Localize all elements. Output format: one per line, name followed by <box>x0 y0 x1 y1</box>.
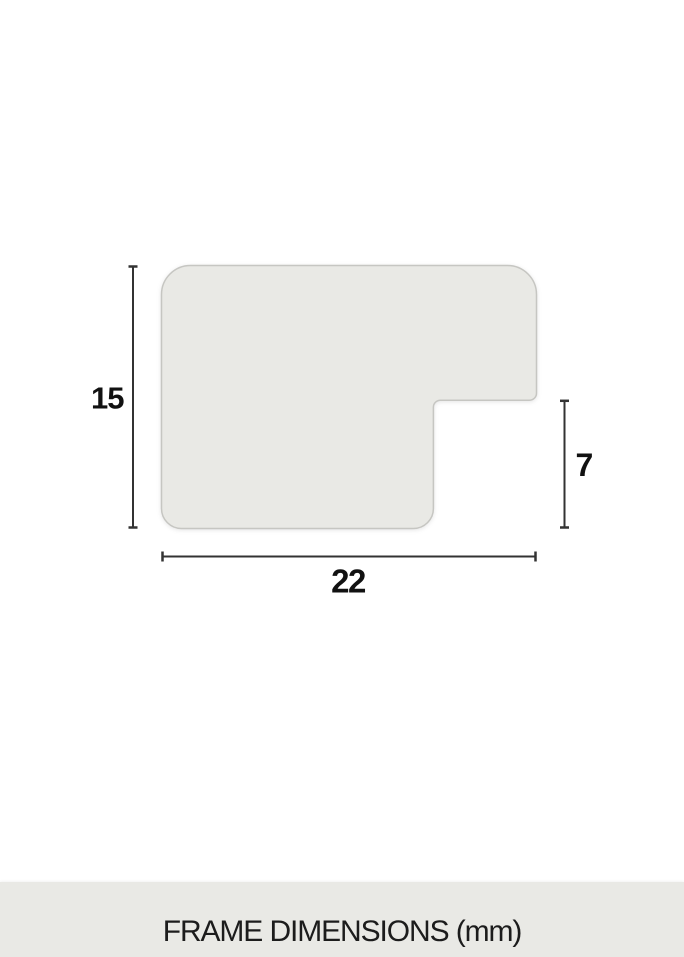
svg-text:22: 22 <box>331 563 366 600</box>
svg-text:15: 15 <box>91 381 124 416</box>
svg-text:7: 7 <box>576 447 594 483</box>
